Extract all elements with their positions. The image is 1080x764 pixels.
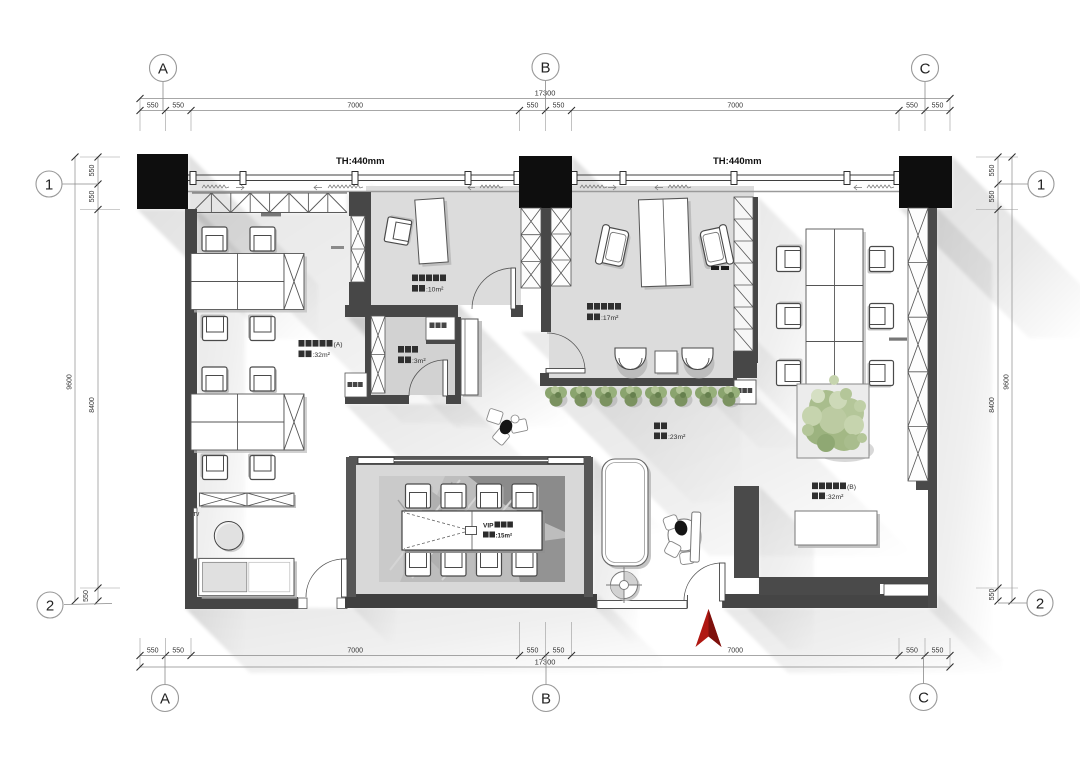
svg-text:TH:440mm: TH:440mm (336, 156, 385, 167)
svg-text:550: 550 (172, 648, 184, 655)
svg-text::32m²: :32m² (313, 352, 331, 359)
svg-text:7000: 7000 (727, 103, 743, 110)
svg-text:TH:440mm: TH:440mm (713, 156, 762, 167)
svg-text:2: 2 (1036, 595, 1044, 612)
svg-text:17300: 17300 (535, 658, 556, 667)
svg-text:8400: 8400 (89, 397, 96, 413)
svg-text:B: B (541, 690, 551, 707)
svg-text:7000: 7000 (347, 103, 363, 110)
svg-text:(A): (A) (334, 341, 343, 348)
svg-text:7000: 7000 (727, 648, 743, 655)
svg-text::15m²: :15m² (496, 532, 513, 539)
svg-text:550: 550 (932, 648, 944, 655)
svg-text:TV: TV (193, 512, 200, 518)
svg-text:8400: 8400 (989, 397, 996, 413)
svg-text:550: 550 (989, 165, 996, 177)
svg-text:550: 550 (83, 590, 90, 602)
svg-text::23m²: :23m² (668, 434, 686, 441)
svg-text:550: 550 (906, 648, 918, 655)
svg-text:1: 1 (1037, 176, 1045, 193)
svg-text::32m²: :32m² (826, 494, 844, 501)
svg-text:A: A (160, 690, 170, 707)
svg-text:550: 550 (989, 191, 996, 203)
svg-text:(B): (B) (847, 484, 856, 491)
svg-text:1: 1 (45, 176, 53, 193)
svg-text:A: A (158, 60, 168, 77)
svg-text:C: C (918, 689, 929, 706)
svg-text:550: 550 (906, 103, 918, 110)
svg-text::3m²: :3m² (412, 358, 426, 365)
svg-text:550: 550 (989, 589, 996, 601)
svg-text:550: 550 (147, 648, 159, 655)
svg-text::17m²: :17m² (601, 315, 619, 322)
svg-text:550: 550 (172, 103, 184, 110)
svg-text:C: C (920, 60, 931, 77)
svg-text:550: 550 (147, 103, 159, 110)
svg-text:550: 550 (89, 191, 96, 203)
svg-text:B: B (540, 59, 550, 76)
svg-text:550: 550 (932, 103, 944, 110)
svg-text:550: 550 (89, 165, 96, 177)
svg-text:550: 550 (527, 648, 539, 655)
svg-text:9600: 9600 (1004, 374, 1011, 390)
svg-text:550: 550 (553, 103, 565, 110)
svg-text:550: 550 (553, 648, 565, 655)
svg-text:17300: 17300 (535, 89, 556, 98)
svg-text:2: 2 (46, 597, 54, 614)
svg-text:550: 550 (527, 103, 539, 110)
svg-text:VIP: VIP (483, 523, 494, 530)
svg-text:9600: 9600 (67, 374, 74, 390)
svg-text::10m²: :10m² (426, 286, 444, 293)
svg-text:7000: 7000 (347, 648, 363, 655)
